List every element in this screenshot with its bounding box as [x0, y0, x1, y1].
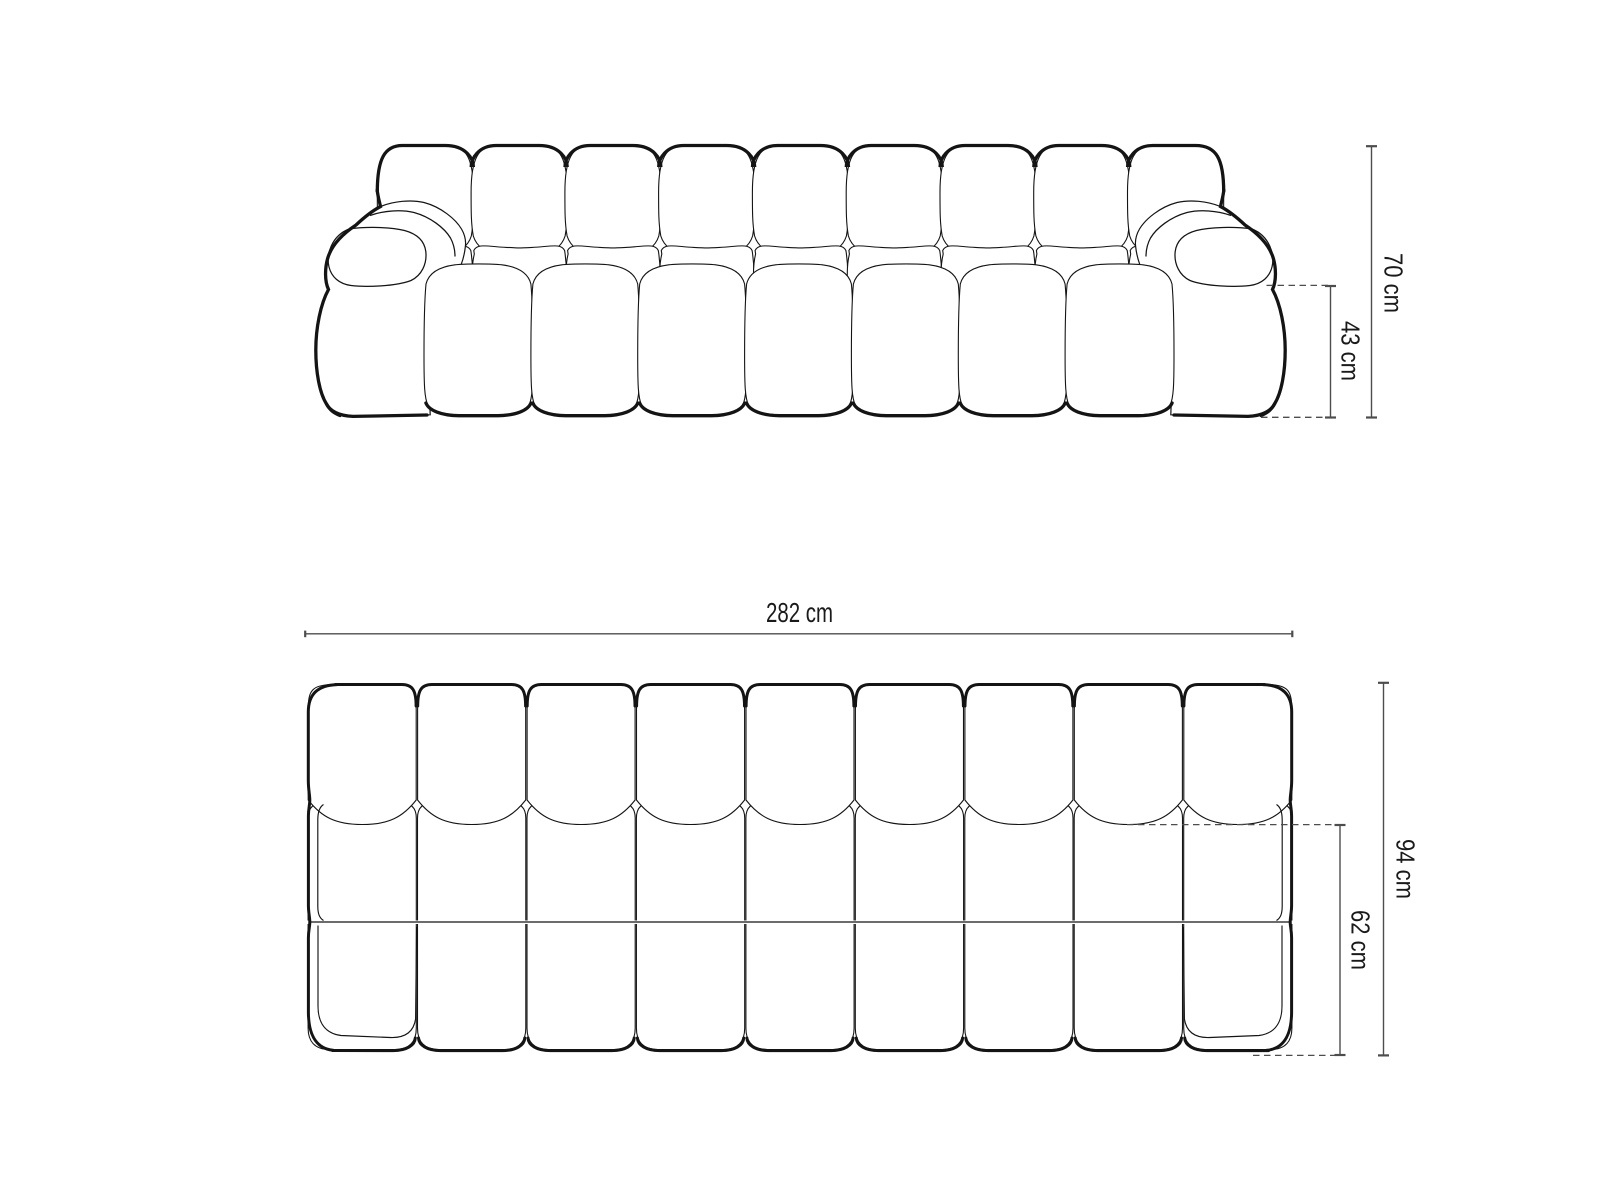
svg-text:62 cm: 62 cm	[1346, 910, 1376, 970]
svg-text:70 cm: 70 cm	[1379, 253, 1409, 313]
svg-text:43 cm: 43 cm	[1336, 321, 1366, 381]
svg-text:282 cm: 282 cm	[766, 597, 833, 628]
svg-text:94 cm: 94 cm	[1391, 839, 1421, 899]
